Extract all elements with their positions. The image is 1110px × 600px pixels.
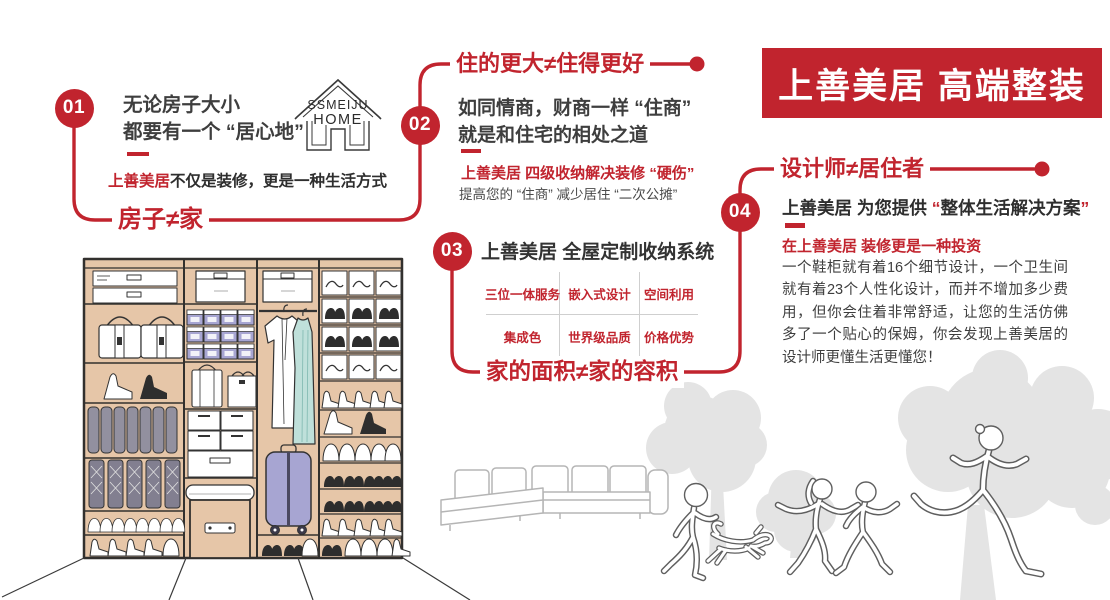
flow-endpoint-dot-1: [690, 57, 705, 72]
s04-head-main: 整体生活解决方案: [940, 198, 1080, 218]
s04-head-prefix: 上善美居 为您提供: [782, 198, 932, 218]
step-badge-01: 01: [55, 89, 94, 128]
s01-slogan-text: 不仅是装修，更是一种生活方式: [170, 173, 387, 190]
table-cell: 三位一体服务: [486, 272, 560, 315]
s02-line2: 就是和住宅的相处之道: [458, 122, 691, 149]
s01-slogan: 上善美居不仅是装修，更是一种生活方式: [108, 169, 387, 191]
step-badge-02: 02: [401, 106, 440, 145]
step-badge-04: 04: [721, 193, 760, 232]
poster: SSMEIJU HOME 上善美居 高端整装 01 02 03 04 无论房子大…: [0, 0, 1110, 600]
s01-tagline: 房子≠家: [112, 204, 209, 236]
s01-brand: 上善美居: [108, 173, 170, 190]
s04-title: 设计师≠居住者: [774, 155, 930, 183]
s03-title: 上善美居 全屋定制收纳系统: [481, 237, 714, 264]
s04-highlight: 在上善美居 装修更是一种投资: [782, 235, 981, 256]
s04-body-paragraph: 一个鞋柜就有着16个细节设计，一个卫生间就有着23个人性化设计，而并不增加多少费…: [782, 257, 1068, 369]
step-badge-03: 03: [433, 232, 472, 271]
table-cell: 嵌入式设计: [560, 272, 640, 315]
table-cell: 价格优势: [640, 315, 698, 357]
s02-dash: [461, 149, 481, 153]
s04-headline: 上善美居 为您提供 “整体生活解决方案”: [782, 195, 1089, 220]
s02-title: 住的更大≠住得更好: [450, 50, 650, 78]
brand-banner: 上善美居 高端整装: [762, 48, 1102, 118]
s04-dash: [785, 223, 805, 228]
s01-line1: 无论房子大小: [123, 92, 304, 119]
s01-line2: 都要有一个 “居心地”: [123, 119, 304, 146]
s02-note: 提高您的 “住商” 减少居住 “二次公摊”: [459, 183, 677, 203]
s04-quote-close: ”: [1080, 198, 1089, 218]
s03-tagline: 家的面积≠家的容积: [480, 356, 684, 388]
table-cell: 空间利用: [640, 272, 698, 315]
s02-body: 如同情商，财商一样 “住商” 就是和住宅的相处之道: [458, 95, 691, 149]
table-cell: 集成色: [486, 315, 560, 357]
s02-highlight: 上善美居 四级收纳解决装修 “硬伤”: [461, 162, 694, 183]
s03-feature-table: 三位一体服务 嵌入式设计 空间利用 集成色 世界级品质 价格优势: [486, 272, 698, 357]
flow-endpoint-dot-2: [1035, 162, 1050, 177]
s02-line1: 如同情商，财商一样 “住商”: [458, 95, 691, 122]
table-cell: 世界级品质: [560, 315, 640, 357]
s01-dash: [127, 152, 149, 156]
s01-intro: 无论房子大小 都要有一个 “居心地”: [123, 92, 304, 146]
